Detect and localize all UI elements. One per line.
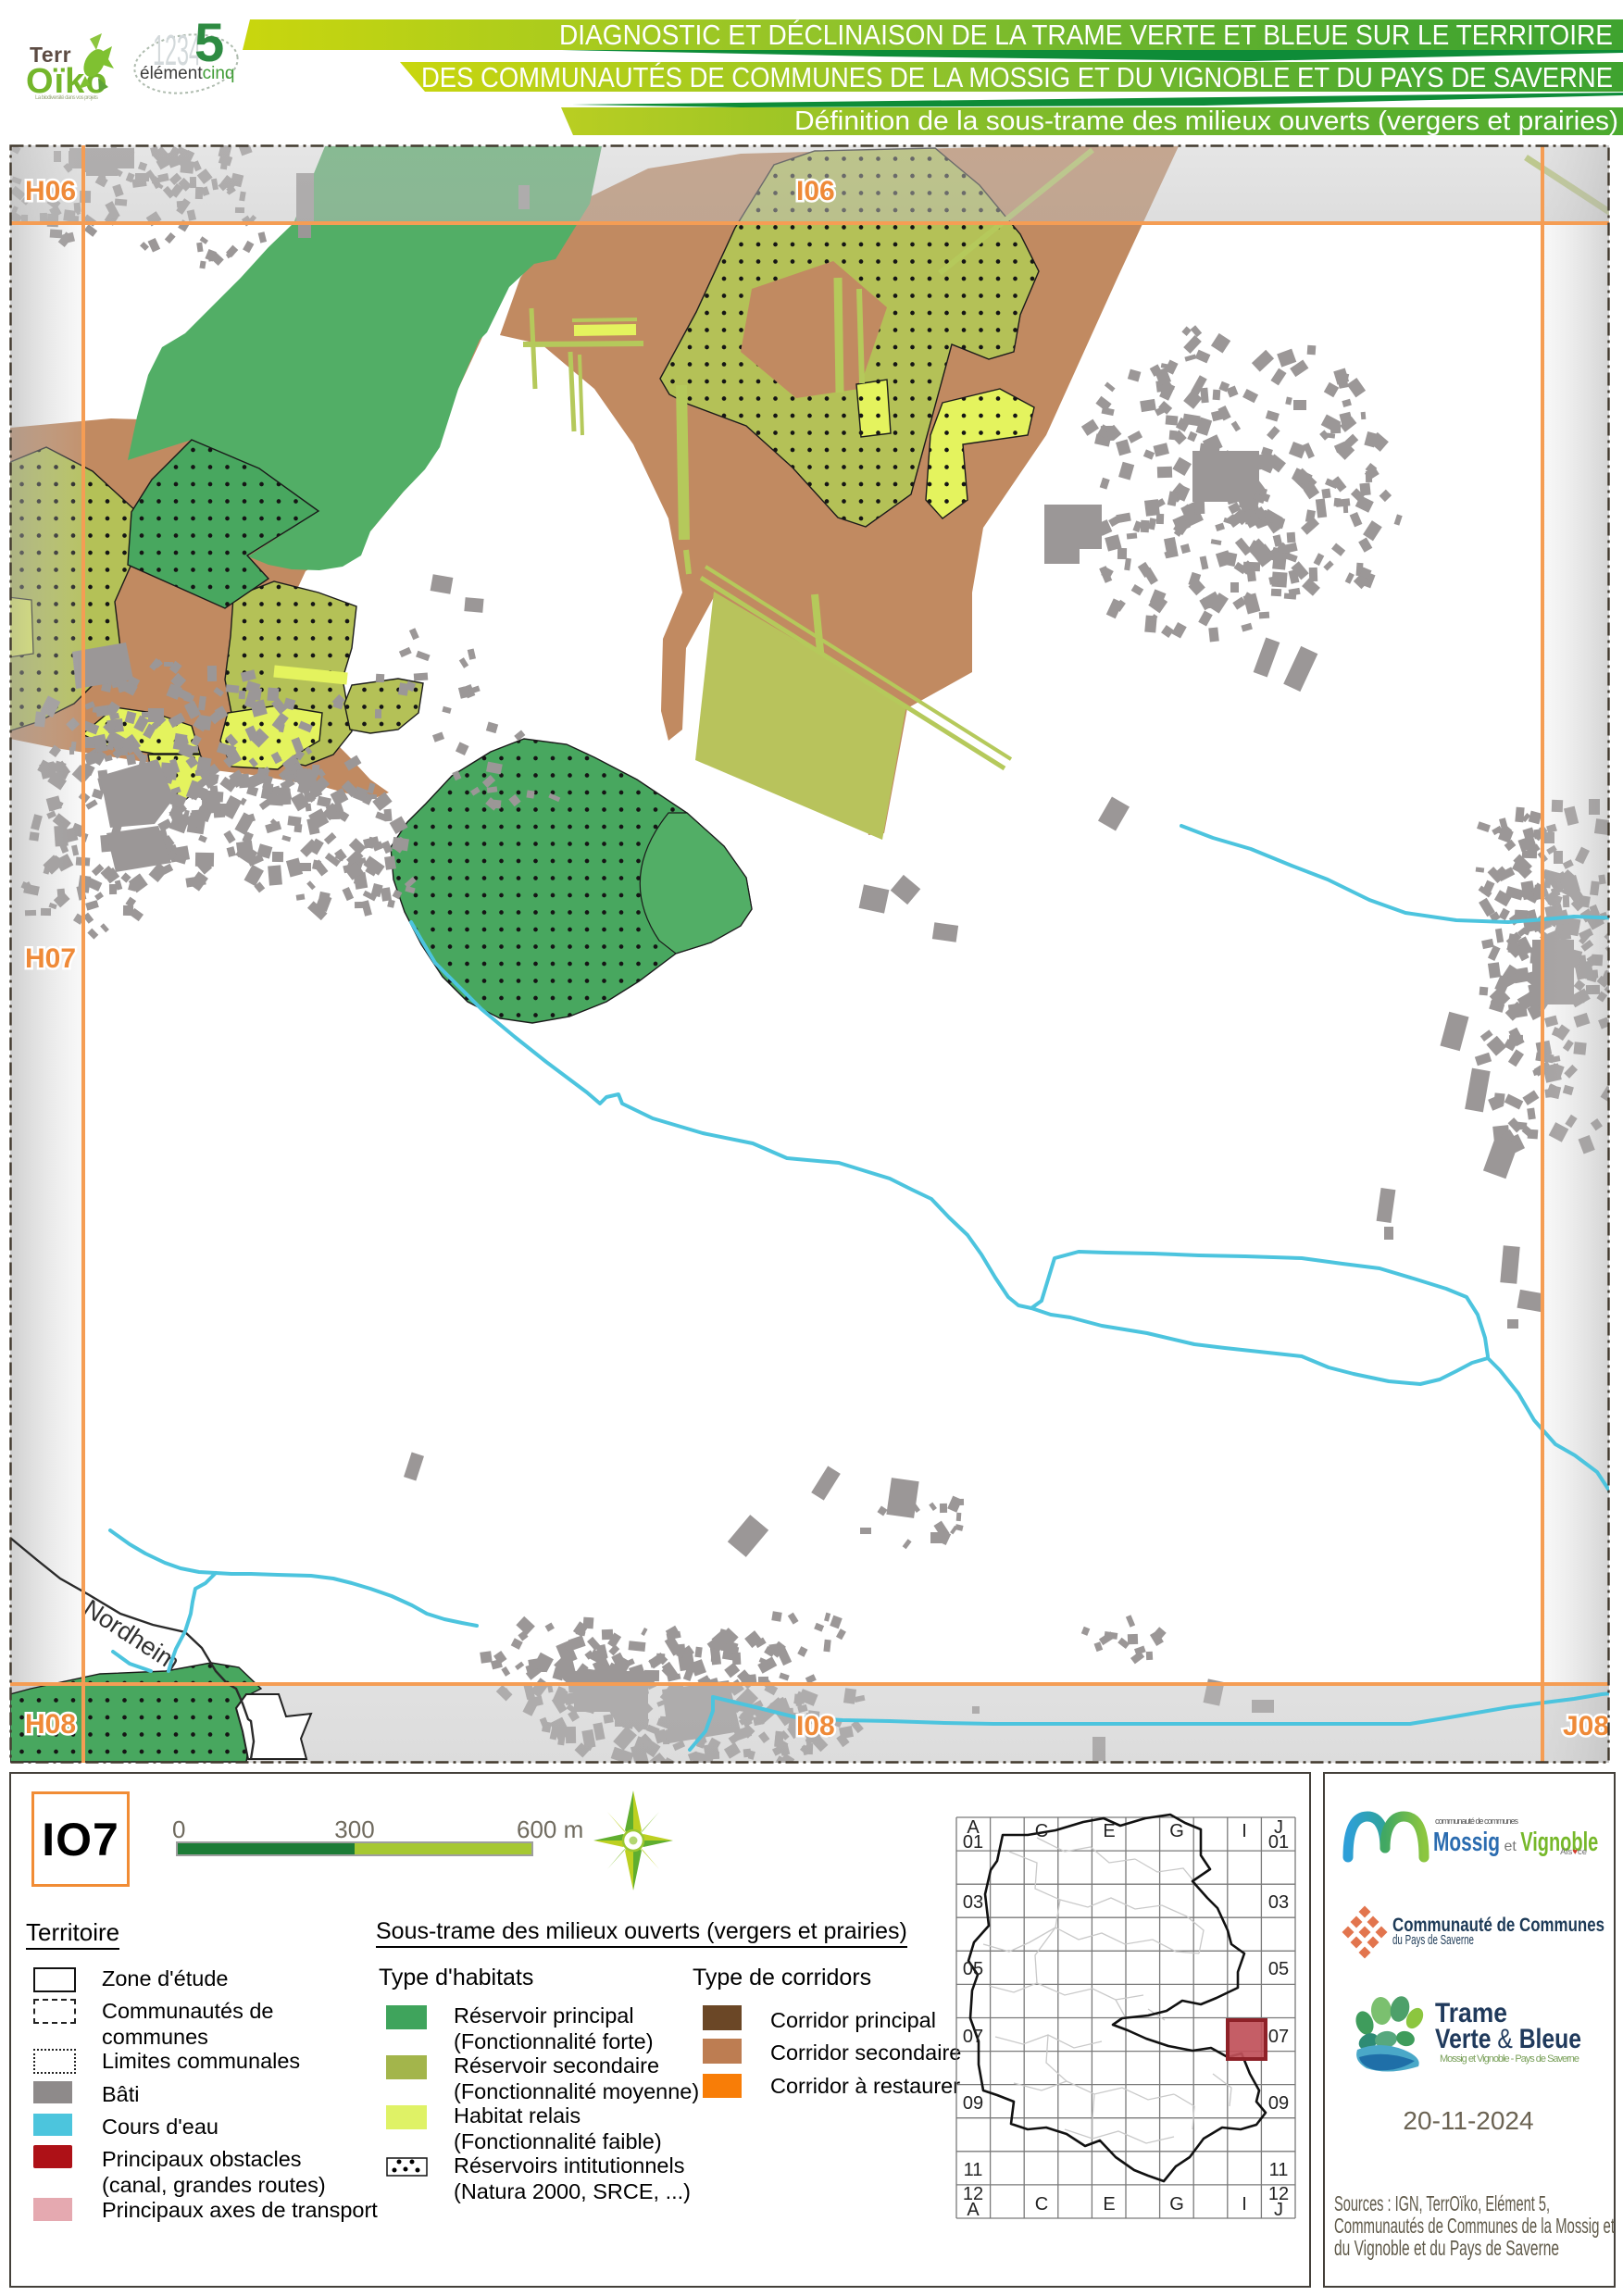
svg-text:du Vignoble et du Pays de Save: du Vignoble et du Pays de Saverne [1334,2236,1559,2260]
svg-text:20-11-2024: 20-11-2024 [1403,2106,1533,2135]
svg-text:Verte & Bleue: Verte & Bleue [1435,2024,1581,2054]
svg-text:du Pays de Saverne: du Pays de Saverne [1392,1932,1474,1948]
svg-text:Mossig et Vignoble - Pays de S: Mossig et Vignoble - Pays de Saverne [1440,2053,1579,2065]
svg-text:Communautés de Communes de la: Communautés de Communes de la Mossig et [1334,2214,1615,2238]
svg-text:Als♥ce: Als♥ce [1560,1847,1587,1857]
svg-text:communauté de communes: communauté de communes [1435,1816,1519,1826]
svg-text:Sources : IGN, TerrOïko, Eléme: Sources : IGN, TerrOïko, Elément 5, [1334,2191,1550,2215]
